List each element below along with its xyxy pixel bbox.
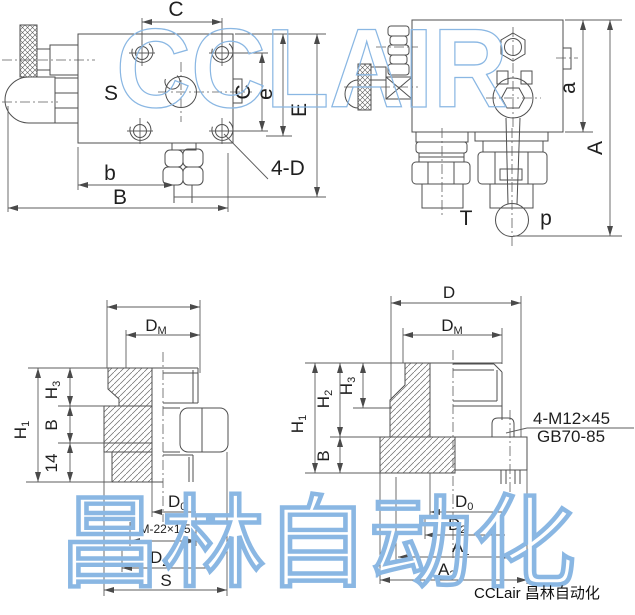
watermark-brand-top: CCLAIR (116, 6, 508, 131)
dim-label-b-small: b (104, 162, 116, 185)
watermark-brand-bottom: 昌林自动化 (58, 488, 576, 600)
dim-label-a-big: A (584, 141, 607, 155)
dim-label-dm-right: DM (441, 316, 462, 337)
dim-label-h3-left: H3 (42, 381, 63, 399)
dim-label-a-small: a (557, 82, 580, 94)
t-port-fitting (412, 132, 470, 208)
label-p-port: p (540, 207, 552, 230)
valve-drawing-canvas: C C e E 4-D b B (0, 0, 635, 615)
dim-label-b-right: B (314, 450, 333, 461)
dim-label-b-big: B (113, 186, 127, 209)
bolt-standard-label: GB70-85 (537, 427, 605, 446)
dim-label-dm-left: DM (145, 316, 166, 337)
bolt-spec-label: 4-M12×45 (533, 409, 610, 428)
dim-label-d-right: D (443, 283, 455, 302)
p-port-fitting (475, 118, 548, 237)
dim-label-14: 14 (42, 454, 61, 473)
dim-label-h1-right: H1 (288, 415, 309, 433)
brand-caption: CCLair 昌林自动化 (474, 585, 600, 602)
technical-drawing-page: C C e E 4-D b B (0, 0, 635, 615)
dim-label-b-left: B (42, 419, 61, 430)
dim-label-h1-left: H1 (11, 421, 32, 439)
label-t-port: T (460, 207, 473, 230)
dim-label-holes: 4-D (271, 157, 305, 180)
dim-label-h2-right: H2 (314, 390, 335, 408)
